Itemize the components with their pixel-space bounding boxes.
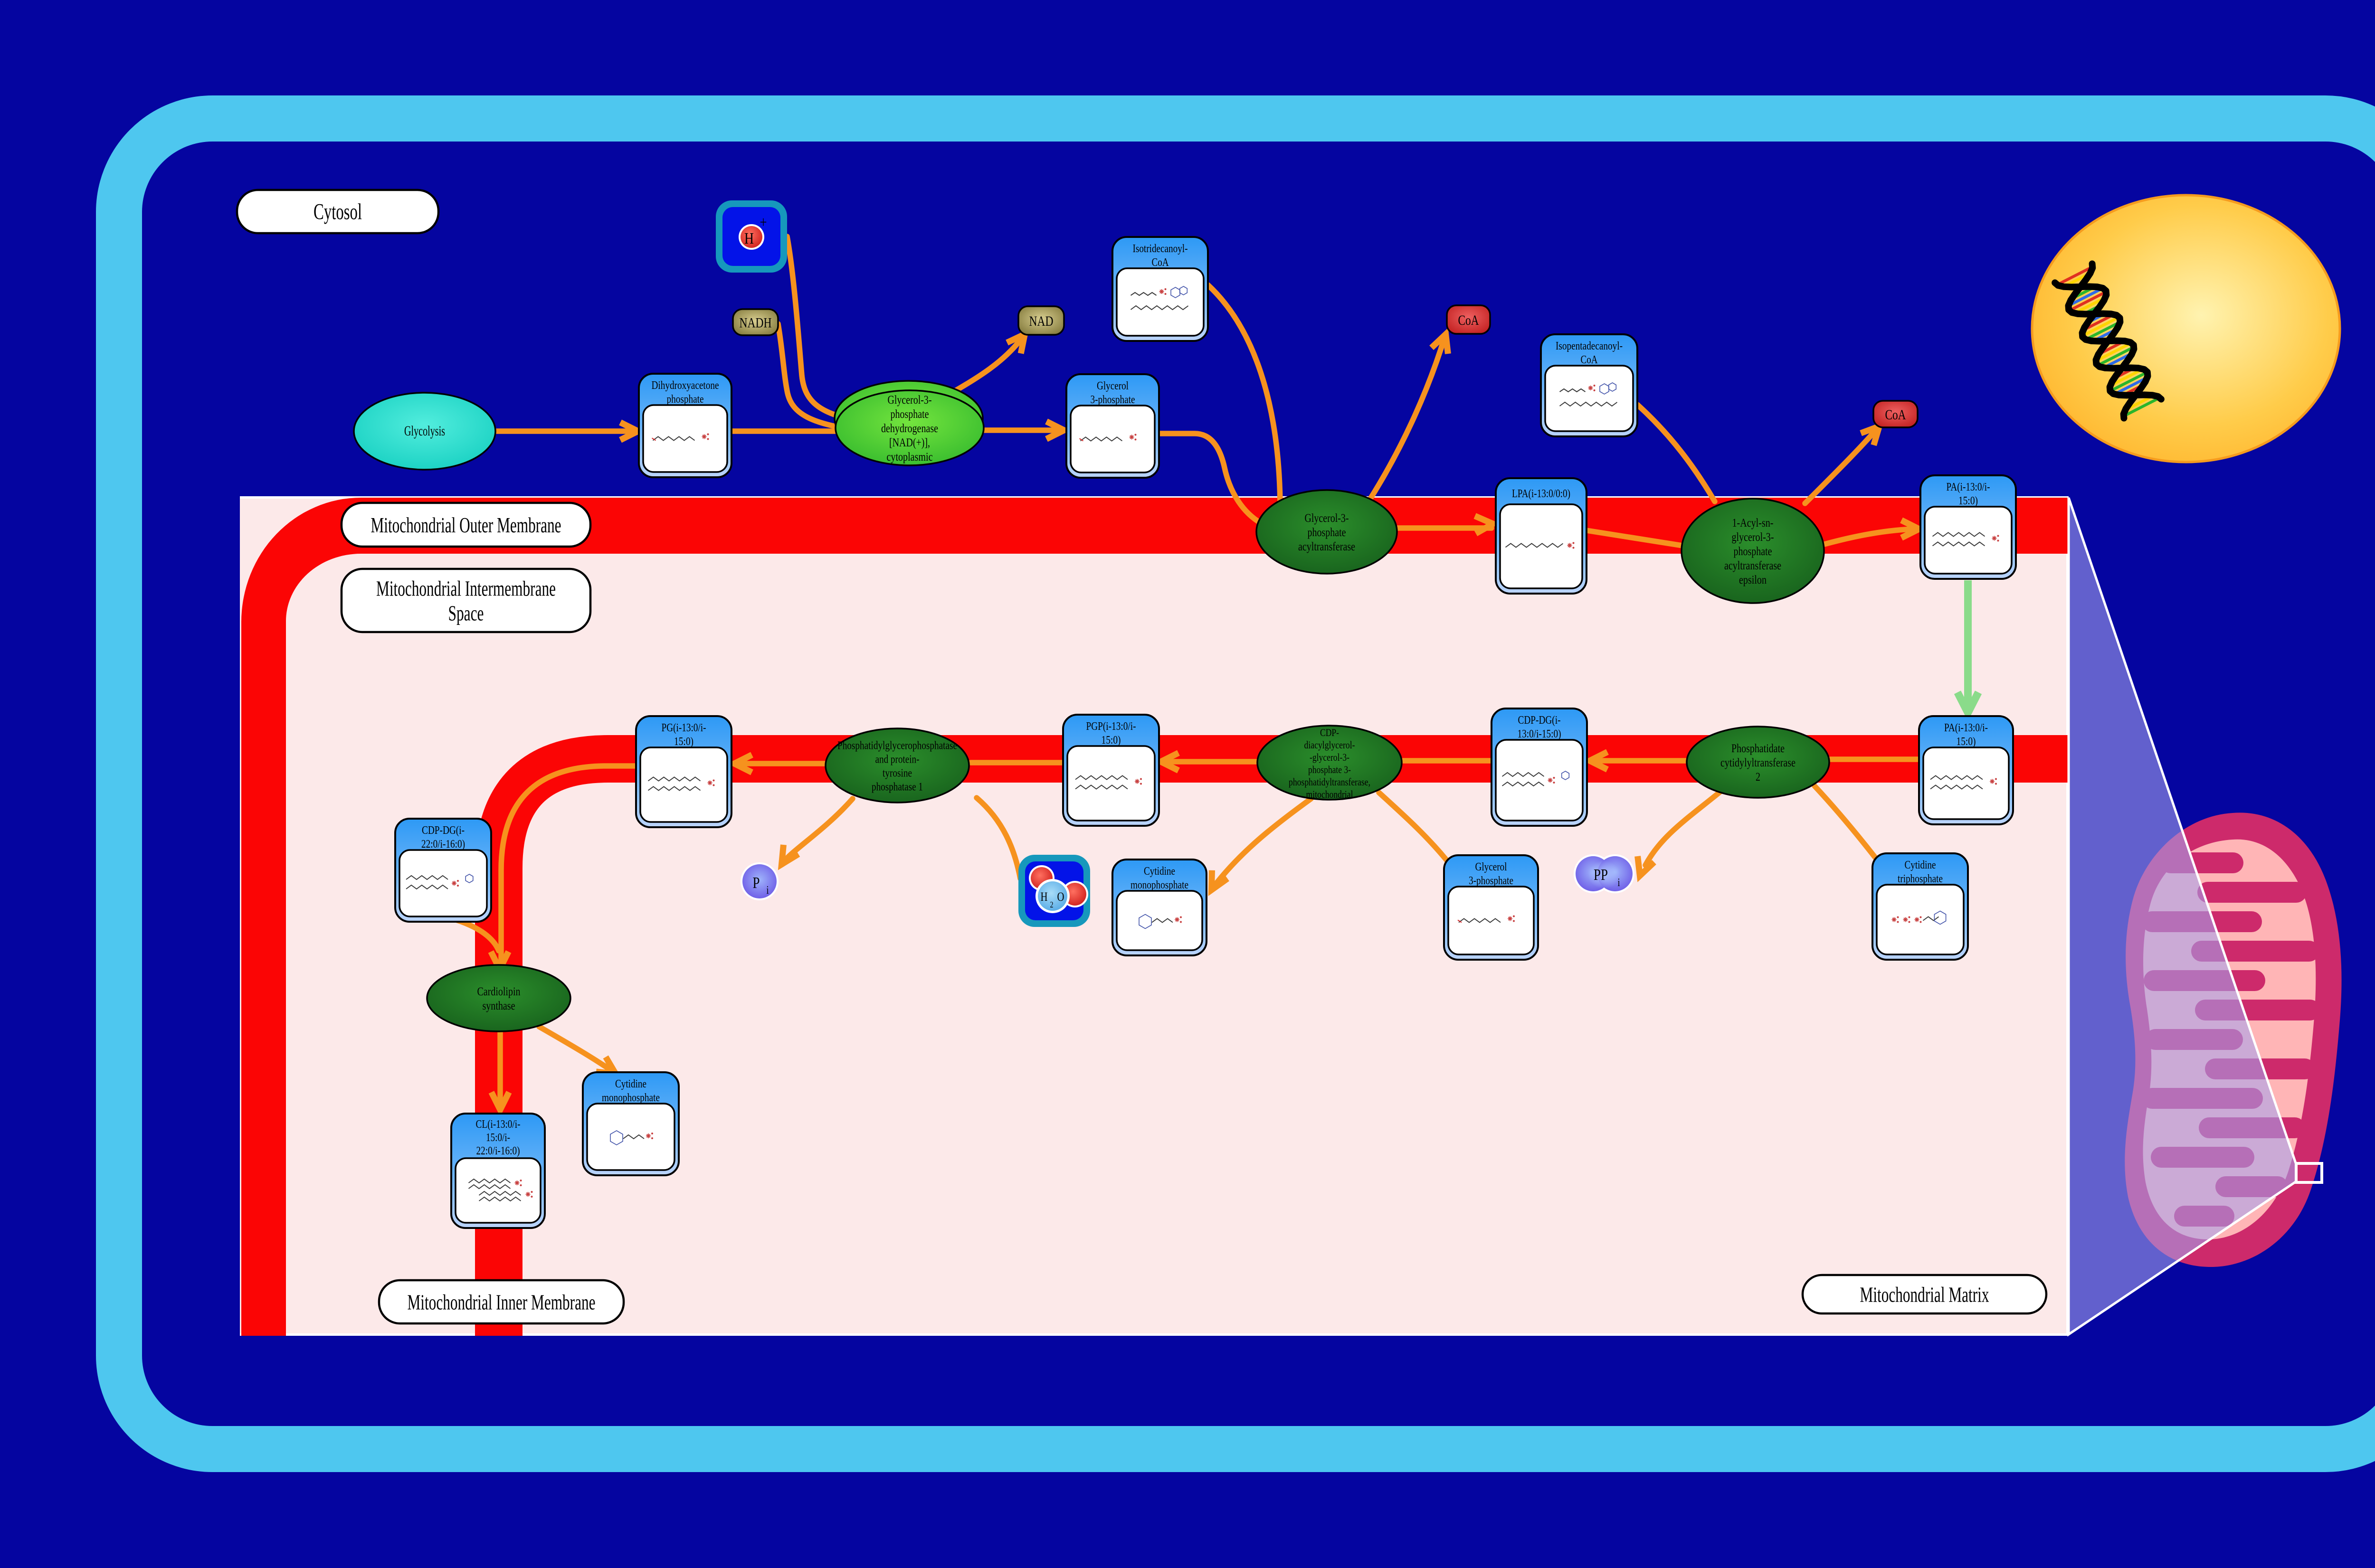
svg-text:LPA(i-13:0/0:0): LPA(i-13:0/0:0) [1512, 488, 1570, 500]
svg-text:CDP-DG(i-: CDP-DG(i- [422, 824, 465, 837]
svg-text:NADH: NADH [740, 315, 772, 331]
svg-text:phosphate 3-: phosphate 3- [1308, 764, 1351, 775]
svg-text:CoA: CoA [1581, 354, 1598, 366]
svg-text:CDP-: CDP- [1320, 727, 1339, 738]
svg-text:dehydrogenase: dehydrogenase [881, 422, 938, 435]
svg-text:1-Acyl-sn-: 1-Acyl-sn- [1732, 517, 1774, 529]
svg-text:NAD: NAD [1029, 313, 1054, 329]
svg-text:22:0/i-16:0): 22:0/i-16:0) [476, 1145, 520, 1157]
svg-text:CoA: CoA [1458, 312, 1479, 328]
svg-text:cytoplasmic: cytoplasmic [887, 451, 933, 463]
svg-text:Cytidine: Cytidine [615, 1078, 646, 1090]
svg-text:Phosphatidylglycerophosphatase: Phosphatidylglycerophosphatase [837, 740, 957, 752]
svg-text:synthase: synthase [483, 1000, 515, 1012]
svg-text:PA(i-13:0/i-: PA(i-13:0/i- [1947, 481, 1990, 493]
svg-text:-glycerol-3-: -glycerol-3- [1310, 751, 1349, 763]
svg-text:15:0/i-: 15:0/i- [486, 1132, 510, 1144]
svg-text:Glycolysis: Glycolysis [404, 423, 445, 439]
svg-text:and protein-: and protein- [875, 754, 920, 766]
svg-text:acyltransferase: acyltransferase [1724, 559, 1781, 572]
svg-text:[NAD(+)],: [NAD(+)], [889, 436, 930, 449]
svg-text:Mitochondrial Outer Membrane: Mitochondrial Outer Membrane [371, 513, 561, 537]
svg-text:Mitochondrial Inner Membrane: Mitochondrial Inner Membrane [408, 1290, 596, 1314]
svg-text:3-phosphate: 3-phosphate [1469, 875, 1513, 887]
svg-text:3-phosphate: 3-phosphate [1091, 394, 1135, 406]
svg-text:CDP-DG(i-: CDP-DG(i- [1518, 714, 1561, 727]
svg-text:PP: PP [1594, 866, 1608, 884]
svg-text:diacylglycerol-: diacylglycerol- [1304, 739, 1355, 751]
svg-text:15:0): 15:0) [1957, 736, 1976, 748]
svg-text:Glycerol-3-: Glycerol-3- [888, 394, 932, 406]
svg-text:CoA: CoA [1152, 256, 1169, 269]
svg-text:tyrosine: tyrosine [883, 767, 912, 780]
svg-text:mitochondrial: mitochondrial [1306, 788, 1353, 800]
svg-text:Cytidine: Cytidine [1144, 865, 1175, 878]
svg-text:Space: Space [448, 601, 484, 625]
svg-text:phosphate: phosphate [1734, 545, 1772, 558]
svg-text:O: O [1057, 890, 1064, 904]
svg-text:Cardiolipin: Cardiolipin [477, 985, 521, 998]
svg-text:Isotridecanoyl-: Isotridecanoyl- [1133, 243, 1188, 255]
svg-text:+: + [760, 214, 767, 231]
svg-text:PA(i-13:0/i-: PA(i-13:0/i- [1944, 722, 1988, 734]
svg-text:Dihydroxyacetone: Dihydroxyacetone [652, 379, 719, 392]
svg-text:15:0): 15:0) [1102, 734, 1121, 746]
svg-text:PG(i-13:0/i-: PG(i-13:0/i- [662, 722, 706, 734]
svg-text:Phosphatidate: Phosphatidate [1731, 742, 1785, 755]
svg-text:phosphatidyltransferase,: phosphatidyltransferase, [1289, 776, 1370, 788]
svg-text:acyltransferase: acyltransferase [1298, 540, 1355, 553]
svg-text:H: H [744, 230, 754, 247]
svg-text:15:0): 15:0) [674, 736, 693, 748]
svg-text:P: P [753, 874, 760, 892]
svg-text:Cytidine: Cytidine [1905, 859, 1936, 871]
svg-text:phosphate: phosphate [891, 408, 929, 421]
svg-text:2: 2 [1756, 771, 1760, 784]
svg-text:triphosphate: triphosphate [1898, 873, 1943, 885]
svg-text:Glycerol: Glycerol [1097, 380, 1129, 392]
svg-text:PGP(i-13:0/i-: PGP(i-13:0/i- [1086, 720, 1136, 733]
svg-text:Mitochondrial Intermembrane: Mitochondrial Intermembrane [376, 576, 556, 601]
svg-text:CoA: CoA [1885, 407, 1906, 423]
svg-text:cytidylyltransferase: cytidylyltransferase [1720, 756, 1795, 769]
svg-text:monophosphate: monophosphate [602, 1092, 660, 1104]
svg-text:15:0): 15:0) [1958, 495, 1978, 507]
svg-text:22:0/i-16:0): 22:0/i-16:0) [421, 838, 465, 850]
svg-text:epsilon: epsilon [1739, 574, 1767, 586]
svg-text:Glycerol: Glycerol [1475, 861, 1507, 873]
svg-text:13:0/i-15:0): 13:0/i-15:0) [1518, 728, 1561, 740]
svg-text:Mitochondrial Matrix: Mitochondrial Matrix [1860, 1283, 1989, 1307]
svg-text:glycerol-3-: glycerol-3- [1732, 531, 1774, 544]
svg-text:2: 2 [1050, 900, 1054, 909]
svg-text:CL(i-13:0/i-: CL(i-13:0/i- [476, 1118, 521, 1131]
svg-text:monophosphate: monophosphate [1130, 879, 1188, 891]
svg-text:phosphate: phosphate [667, 393, 704, 406]
svg-text:i: i [767, 884, 769, 897]
svg-text:Cytosol: Cytosol [313, 199, 362, 225]
svg-text:Glycerol-3-: Glycerol-3- [1305, 512, 1349, 525]
svg-text:H: H [1041, 890, 1048, 904]
svg-text:i: i [1618, 877, 1620, 889]
svg-text:Isopentadecanoyl-: Isopentadecanoyl- [1556, 340, 1623, 352]
svg-text:phosphatase 1: phosphatase 1 [872, 781, 923, 793]
svg-text:phosphate: phosphate [1308, 526, 1346, 539]
